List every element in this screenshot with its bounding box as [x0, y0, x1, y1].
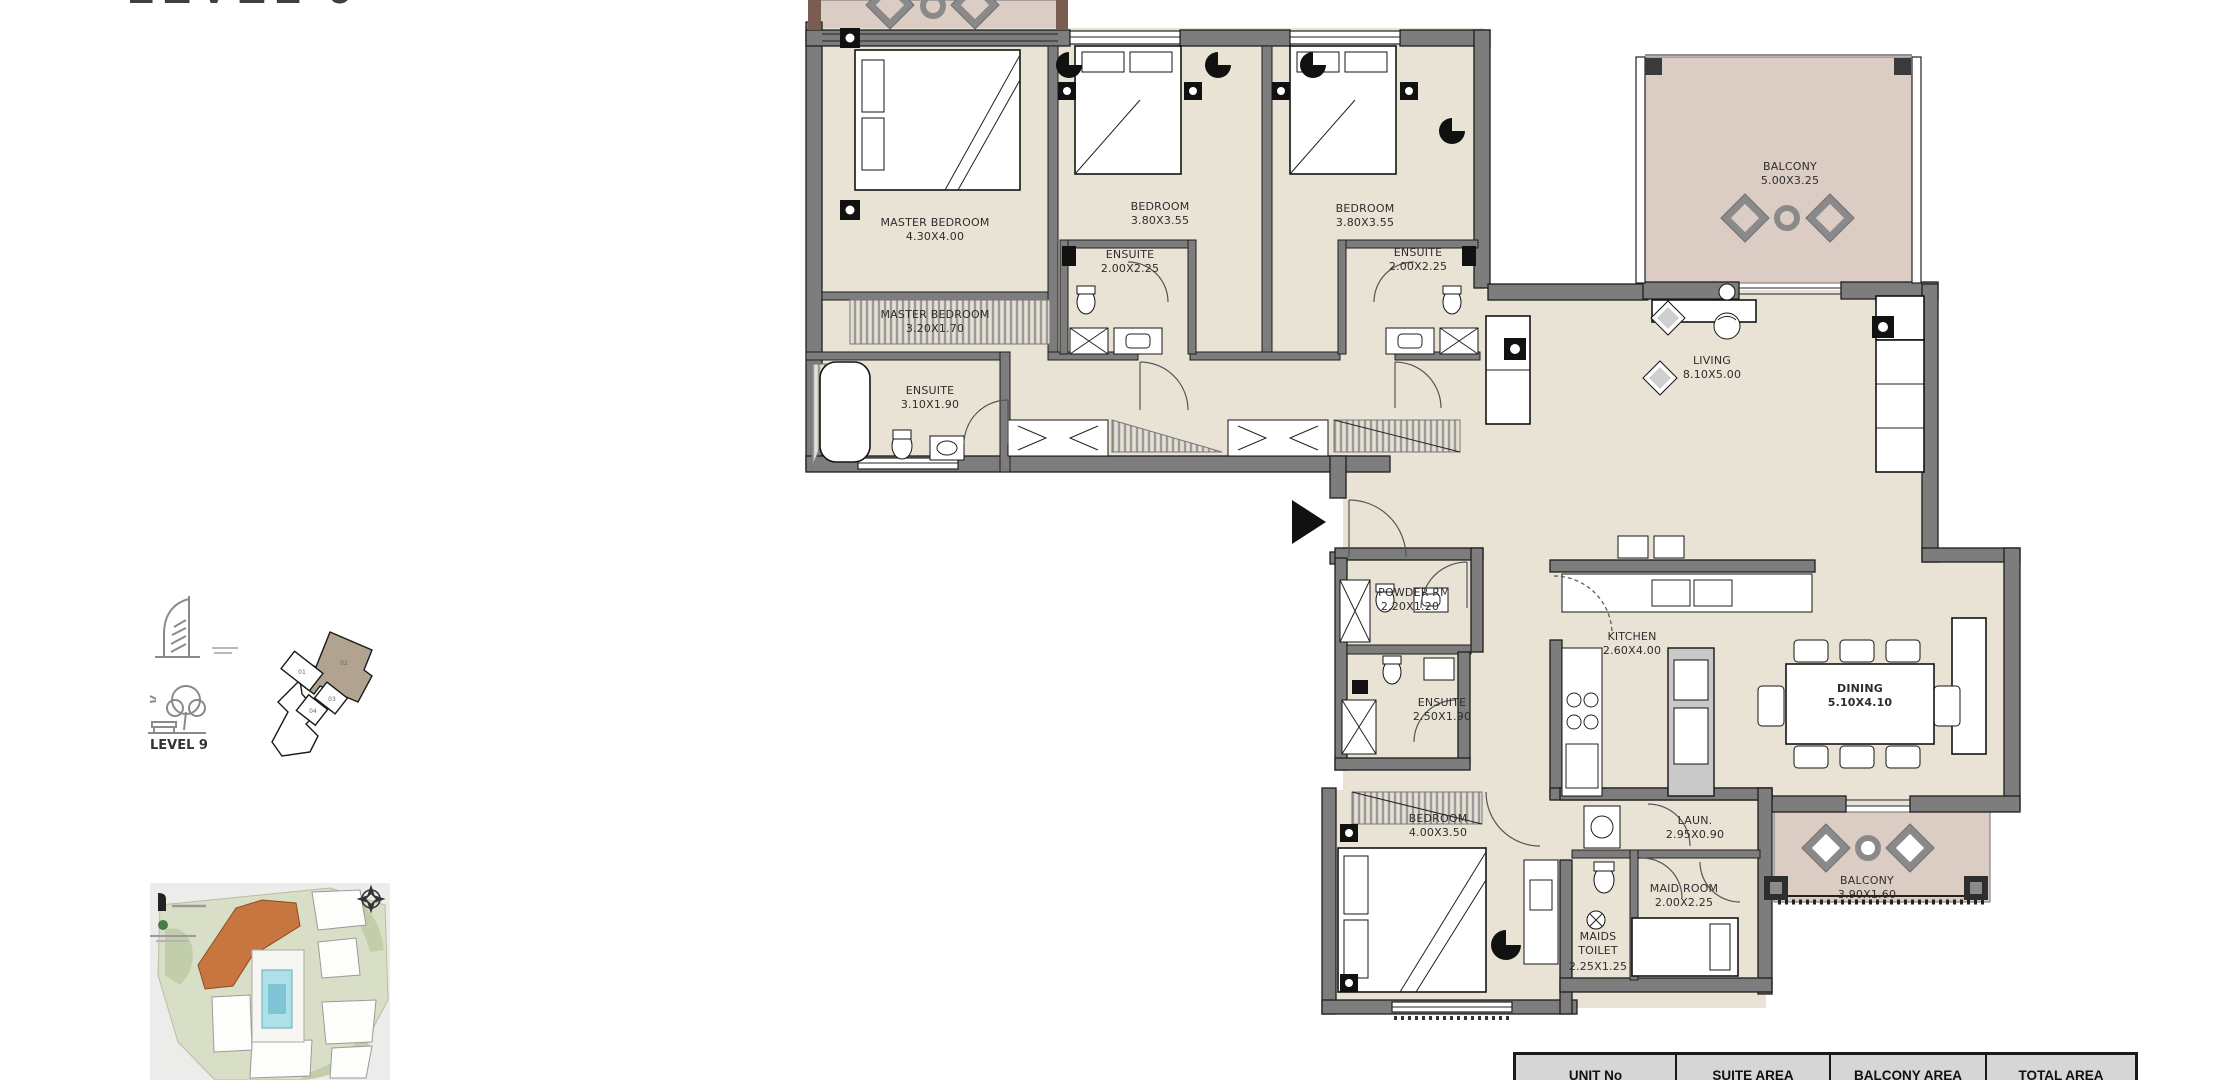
label-living-dims: 8.10X5.00 — [1683, 368, 1741, 381]
area-table-header-balcony-area: BALCONY AREA — [1831, 1055, 1987, 1080]
label-balcony-bottom: BALCONY — [1840, 874, 1894, 887]
bed-maid — [1632, 918, 1738, 976]
park-icon — [148, 686, 206, 733]
bed-2 — [1075, 46, 1181, 174]
bed-master — [855, 50, 1020, 190]
label-laundry-dims: 2.95X0.90 — [1666, 828, 1724, 841]
area-table-header-unit-no: UNIT No — [1516, 1055, 1677, 1080]
label-ensuite2-dims: 2.00X2.25 — [1101, 262, 1159, 275]
label-powder: POWDER RM — [1378, 586, 1450, 599]
entry-arrow — [1292, 500, 1326, 544]
label-bedroom2: BEDROOM — [1131, 200, 1190, 213]
label-ensuite4: ENSUITE — [1418, 696, 1467, 709]
site-building — [318, 938, 360, 978]
label-dining-dims: 5.10X4.10 — [1828, 696, 1893, 709]
label-living: LIVING — [1693, 354, 1731, 367]
label-maid-room-dims: 2.00X2.25 — [1655, 896, 1713, 909]
unit-floorplan: MASTER BEDROOM 4.30X4.00 MASTER BEDROOM … — [806, 0, 2020, 1018]
label-ensuite4-dims: 2.50X1.90 — [1413, 710, 1471, 723]
laundry-fixtures — [1584, 806, 1620, 848]
label-master-bedroom2: MASTER BEDROOM — [880, 308, 989, 321]
label-bedroom4: BEDROOM — [1409, 812, 1468, 825]
area-table-header-suite-area: SUITE AREA — [1677, 1055, 1831, 1080]
label-maids-toilet-dims: 2.25X1.25 — [1569, 960, 1627, 973]
key-logo-text — [212, 648, 238, 653]
label-dining: DINING — [1837, 682, 1883, 695]
site-building — [322, 1000, 376, 1044]
key-plan: LEVEL 9 01 02 03 04 — [148, 596, 372, 756]
label-powder-dims: 2.20X1.20 — [1381, 600, 1439, 613]
site-building — [330, 1046, 372, 1078]
key-unit-03: 03 — [328, 696, 336, 703]
label-master-ensuite-dims: 3.10X1.90 — [901, 398, 959, 411]
balcony-post — [1894, 58, 1911, 75]
site-tree-icon — [158, 920, 168, 930]
balcony-post — [1056, 0, 1068, 30]
floorplan-page: LEVEL 9 — [0, 0, 2220, 1080]
label-balcony-top: BALCONY — [1763, 160, 1817, 173]
label-bedroom3: BEDROOM — [1336, 202, 1395, 215]
key-unit-01: 01 — [298, 669, 306, 676]
label-balcony-top-dims: 5.00X3.25 — [1761, 174, 1819, 187]
label-maid-room: MAID ROOM — [1650, 882, 1718, 895]
floorplan-canvas: LEVEL 9 01 02 03 04 — [0, 0, 2220, 1080]
burj-al-arab-icon — [155, 596, 200, 657]
site-building — [250, 1040, 312, 1078]
label-master-bedroom: MASTER BEDROOM — [880, 216, 989, 229]
key-plan-level-label: LEVEL 9 — [150, 738, 208, 753]
balcony-post — [1645, 58, 1662, 75]
area-table-header-total-area: TOTAL AREA — [1987, 1055, 2135, 1080]
site-building — [212, 995, 252, 1052]
key-unit-04: 04 — [309, 708, 317, 715]
label-bedroom3-dims: 3.80X3.55 — [1336, 216, 1394, 229]
label-laundry: LAUN. — [1678, 814, 1713, 827]
label-master-ensuite: ENSUITE — [906, 384, 955, 397]
label-bedroom4-dims: 4.00X3.50 — [1409, 826, 1467, 839]
label-maids-toilet-1: MAIDS — [1580, 930, 1617, 943]
label-bedroom2-dims: 3.80X3.55 — [1131, 214, 1189, 227]
key-unit-02: 02 — [340, 660, 348, 667]
label-ensuite3: ENSUITE — [1394, 246, 1443, 259]
balcony-post — [808, 0, 821, 30]
site-plan — [150, 883, 390, 1080]
area-table: UNIT No SUITE AREA BALCONY AREA TOTAL AR… — [1513, 1052, 2138, 1080]
label-balcony-bottom-dims: 3.90X1.60 — [1838, 888, 1896, 901]
site-burj-icon — [158, 893, 166, 911]
label-kitchen: KITCHEN — [1607, 630, 1656, 643]
label-ensuite3-dims: 2.00X2.25 — [1389, 260, 1447, 273]
key-plate — [272, 632, 372, 756]
site-building — [312, 890, 366, 930]
label-ensuite2: ENSUITE — [1106, 248, 1155, 261]
label-master-bedroom2-dims: 3.20X1.70 — [906, 322, 964, 335]
label-kitchen-dims: 2.60X4.00 — [1603, 644, 1661, 657]
label-master-bedroom-dims: 4.30X4.00 — [906, 230, 964, 243]
label-maids-toilet-2: TOILET — [1577, 944, 1618, 957]
